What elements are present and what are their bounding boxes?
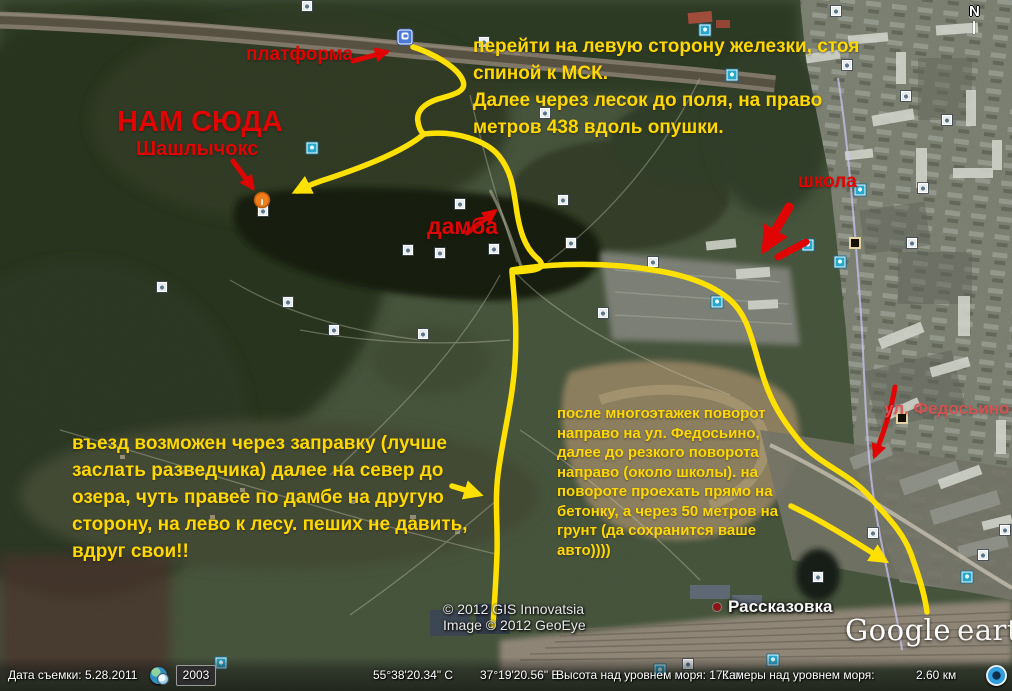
streaming-progress-icon (986, 665, 1007, 686)
note-line: направо на ул. Федосьино, (557, 424, 778, 444)
place-dot (713, 603, 721, 611)
north-label: N (969, 3, 980, 20)
north-indicator-stem (973, 21, 975, 34)
note-line: сторону, на лево к лесу. пеших не давить… (72, 511, 468, 538)
status-bar: Дата съемки: 5.28.2011 2003 55°38'20.34"… (0, 657, 1012, 691)
annotation-nam-suda-label: НАМ СЮДА (117, 106, 283, 139)
imagery-date: Дата съемки: 5.28.2011 (8, 668, 137, 682)
annotation-shashlychoks-label: Шашлычокс (136, 138, 258, 161)
time-slider-year-button[interactable]: 2003 (176, 665, 216, 686)
note-line: после многоэтажек поворот (557, 404, 778, 424)
route-branch-to-marker (297, 134, 424, 191)
note-line: озера, чуть правее по дамбе на другую (72, 484, 468, 511)
note-line: вдруг свои!! (72, 538, 468, 565)
red-arrow-shkola-barb (778, 242, 806, 257)
map-viewport[interactable]: платформа НАМ СЮДА Шашлычокс дамба школа… (0, 0, 1012, 691)
route-along-dam (424, 133, 542, 272)
red-arrow-nam-suda (233, 161, 252, 187)
red-arrow-shkola (766, 207, 789, 247)
note-line: направо (около школы). на (557, 463, 778, 483)
route-south-field (493, 272, 516, 626)
annotation-shkola-label: школа (798, 171, 857, 193)
note-line: бетонку, а через 50 метров на (557, 502, 778, 522)
note-line: перейти на левую сторону железки, стоя (473, 33, 859, 60)
note-line: метров 438 вдоль опушки. (473, 114, 859, 141)
annotation-fedosino-label: ул. Федосьино (884, 399, 1009, 419)
note-line: въезд возможен через заправку (лучше (72, 430, 468, 457)
status-camera-altitude-label: Камеры над уровнем моря: (722, 668, 875, 682)
copyright-line: © 2012 GIS Innovatsia (443, 601, 586, 617)
annotation-note-top: перейти на левую сторону железки, стоя с… (473, 33, 859, 141)
note-line: заслать разведчика) далее на север до (72, 457, 468, 484)
annotation-note-left: въезд возможен через заправку (лучше зас… (72, 430, 468, 565)
note-line: грунт (да сохранится ваше (557, 521, 778, 541)
note-line: далее до резкого поворота (557, 443, 778, 463)
annotation-platform-label: платформа (246, 44, 353, 66)
annotation-damba-label: дамба (427, 213, 498, 240)
red-arrow-platform (353, 52, 386, 61)
status-elevation: Высота над уровнем моря: 172 м (556, 668, 741, 682)
logo-earth: earth (957, 613, 1012, 647)
note-line: повороте проехать прямо на (557, 482, 778, 502)
note-line: авто)))) (557, 541, 778, 561)
status-longitude: 37°19'20.56" В (480, 668, 559, 682)
status-camera-altitude-value: 2.60 км (916, 668, 956, 682)
google-earth-logo: Googleearth (845, 613, 1012, 647)
logo-google: Google (845, 613, 951, 647)
status-latitude: 55°38'20.34" С (373, 668, 453, 682)
annotation-note-center: после многоэтажек поворот направо на ул.… (557, 404, 778, 560)
note-line: Далее через лесок до поля, на право (473, 87, 859, 114)
red-arrow-fedosino (875, 387, 895, 455)
north-indicator[interactable]: N (969, 3, 980, 34)
imagery-copyright: © 2012 GIS Innovatsia Image © 2012 GeoEy… (443, 601, 586, 633)
yellow-arrow-dirt-turn (791, 506, 884, 560)
shashlyk-marker[interactable] (255, 193, 270, 208)
place-label-rasskazovka: Рассказовка (728, 597, 832, 617)
route-start-wiggle (413, 47, 464, 134)
copyright-line: Image © 2012 GeoEye (443, 617, 586, 633)
note-line: спиной к МСК. (473, 60, 859, 87)
time-slider-icon[interactable] (150, 667, 167, 684)
